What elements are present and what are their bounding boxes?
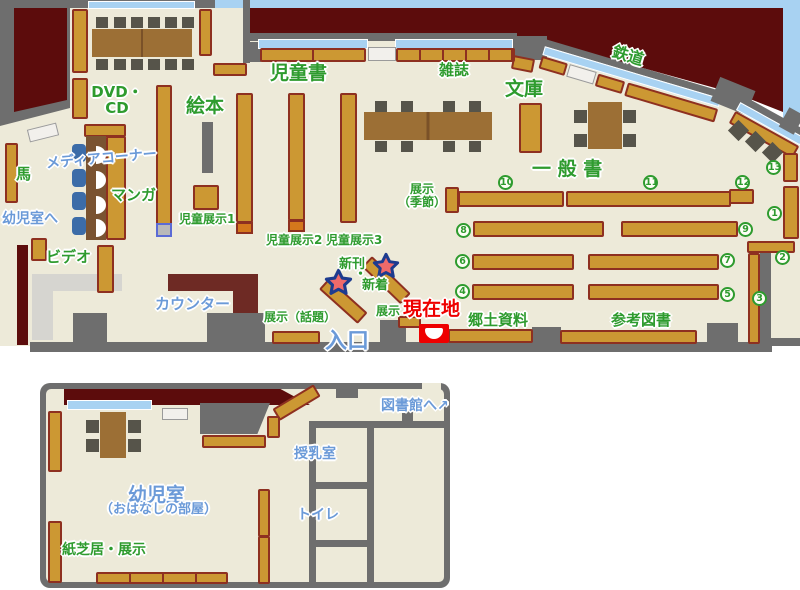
chair: [443, 141, 455, 152]
label-children-exhibit1: 児童展示1: [179, 213, 235, 226]
label-to-library: 図書館へ↗: [381, 399, 449, 414]
wall-block: [532, 327, 561, 344]
room-wall: [309, 421, 444, 428]
label-reference-books: 参考図書: [611, 312, 671, 328]
label-current-location: 現在地: [403, 299, 460, 320]
shelf-number-13: 13: [766, 160, 781, 175]
shelf-number-5: 5: [720, 287, 735, 302]
label-nursing-room: 授乳室: [294, 447, 336, 462]
bookshelf: [236, 93, 253, 223]
shelf-end-display: [236, 222, 253, 234]
label-kamishibai: 紙芝居・展示: [62, 543, 146, 558]
label-dvd-line2: CD: [88, 100, 146, 116]
bookshelf: [258, 536, 270, 584]
chair: [401, 101, 413, 112]
star-icon: [372, 252, 400, 280]
chair: [114, 17, 126, 28]
local-materials-shelf: [448, 329, 533, 343]
chair: [469, 101, 481, 112]
label-magazines: 雑誌: [439, 62, 469, 78]
chair: [131, 59, 143, 70]
label-toilet: トイレ: [297, 508, 339, 523]
bookshelf-4: [472, 284, 574, 300]
label-exhibit-seasonal-line1: 展示: [398, 183, 446, 196]
bookshelf-5: [588, 284, 719, 300]
wall-shelf-row: [260, 48, 366, 62]
reading-table: [588, 102, 622, 149]
bookshelf-6: [472, 254, 574, 270]
display-table: [368, 47, 396, 61]
shelf-number-4: 4: [455, 284, 470, 299]
shelf-number-2: 2: [775, 250, 790, 265]
label-infant-room-sub: （おはなしの部屋）: [100, 503, 217, 517]
shelf-number-8: 8: [456, 223, 471, 238]
label-exhibit-topics: 展示（話題）: [264, 311, 336, 324]
label-children-exhibit2: 児童展示2: [266, 234, 322, 247]
kamishibai-shelf-row: [96, 572, 228, 584]
seasonal-exhibit-shelf: [445, 187, 459, 213]
reference-books-shelf: [560, 330, 697, 344]
chair: [375, 141, 387, 152]
pillar: [202, 122, 213, 173]
chair: [375, 101, 387, 112]
chair: [165, 59, 177, 70]
chair: [131, 17, 143, 28]
media-chair: [72, 217, 86, 235]
label-dvd-cd: DVD・ CD: [88, 84, 146, 116]
label-children-exhibit3: 児童展示3: [326, 234, 382, 247]
chair: [165, 17, 177, 28]
bookshelf-13: [783, 153, 798, 182]
label-to-library-text: 図書館へ: [381, 398, 437, 414]
bookshelf-2: [747, 241, 795, 253]
bookshelf-12: [729, 189, 754, 204]
wall-block: [73, 313, 107, 344]
bookshelf: [48, 411, 62, 472]
bookshelf-10: [458, 191, 564, 207]
label-manga: マンガ: [111, 187, 156, 203]
counter-back-area: [32, 274, 53, 340]
label-to-infant-room: 幼児室へ: [2, 212, 58, 227]
chair: [623, 134, 636, 147]
wall-tab: [336, 389, 358, 398]
bookshelf: [199, 9, 212, 56]
window: [67, 400, 152, 410]
label-bunko: 文庫: [505, 79, 543, 100]
label-new-arrivals-2: 新着: [362, 279, 388, 293]
star-icon: [324, 268, 353, 297]
bookshelf: [267, 416, 280, 438]
label-entrance: 入口: [325, 330, 369, 354]
bookshelf: [48, 521, 62, 583]
label-exhibit: 展示: [376, 305, 400, 318]
label-local-materials: 郷土資料: [468, 312, 528, 328]
marker-symbol: [425, 328, 443, 339]
bookshelf-7: [588, 254, 719, 270]
chair: [114, 59, 126, 70]
label-dvd-line1: DVD・: [88, 84, 146, 100]
chair: [469, 141, 481, 152]
library-floor-map: DVD・ CD 馬 メディアコーナー マンガ 幼児室へ ビデオ 絵本 児童書 児…: [0, 0, 800, 590]
shelf-number-1: 1: [767, 206, 782, 221]
chair: [574, 110, 587, 123]
shelf-end-display: [288, 220, 305, 232]
bookshelf: [156, 85, 172, 225]
chair: [148, 59, 160, 70]
top-left-closed-area: [14, 3, 67, 115]
bookshelf-1: [783, 186, 799, 239]
media-chair: [72, 169, 86, 187]
chair: [148, 17, 160, 28]
bookshelf-8: [473, 221, 604, 237]
children-exhibit-table: [193, 185, 219, 210]
chair: [96, 17, 108, 28]
chair: [623, 110, 636, 123]
kiosk-box: [156, 223, 172, 237]
left-wall-strip: [17, 245, 28, 345]
chair: [401, 141, 413, 152]
outside-sky-right: [783, 0, 800, 118]
bookshelf: [72, 78, 88, 119]
label-exhibit-seasonal: 展示 （季節）: [398, 183, 446, 209]
service-counter: [233, 274, 258, 313]
media-chair: [72, 192, 86, 210]
wall-shelf-row: [396, 48, 515, 62]
reading-table: [92, 29, 192, 57]
shelf-number-6: 6: [455, 254, 470, 269]
bookshelf: [340, 93, 357, 223]
shelf-number-12: 12: [735, 175, 750, 190]
label-horse: 馬: [16, 166, 31, 182]
chair: [128, 420, 141, 433]
bookshelf: [72, 9, 88, 73]
shelf-number-3: 3: [752, 291, 767, 306]
chair: [86, 439, 99, 452]
bookshelf: [213, 63, 247, 76]
shelf-number-9: 9: [738, 222, 753, 237]
wall-block: [707, 323, 738, 344]
video-shelf: [97, 245, 114, 293]
label-children-books: 児童書: [270, 63, 327, 84]
chair: [86, 420, 99, 433]
reading-table: [100, 412, 126, 458]
bookshelf: [202, 435, 266, 448]
bunko-shelf: [519, 103, 542, 153]
label-counter: カウンター: [155, 296, 230, 312]
room-wall: [367, 421, 374, 583]
bookshelf-11: [566, 191, 731, 207]
wall-block: [207, 313, 265, 344]
sign-board: [162, 408, 188, 420]
chair: [182, 59, 194, 70]
reading-table: [364, 112, 492, 140]
chair: [182, 17, 194, 28]
bookshelf: [258, 489, 270, 537]
label-picture-books: 絵本: [186, 96, 224, 117]
room-wall: [309, 540, 374, 547]
label-exhibit-seasonal-line2: （季節）: [398, 196, 446, 209]
wall: [770, 338, 800, 346]
bookshelf: [31, 238, 47, 261]
shelf-number-11: 11: [643, 175, 658, 190]
current-location-marker: [419, 324, 449, 343]
label-video: ビデオ: [46, 249, 91, 265]
window: [88, 1, 195, 9]
shelf-number-10: 10: [498, 175, 513, 190]
to-library-arrow-icon: ↗: [437, 398, 449, 414]
chair: [443, 101, 455, 112]
room-wall: [309, 482, 374, 489]
label-general-books: 一 般 書: [532, 159, 602, 180]
bookshelf: [288, 93, 305, 221]
shelf-number-7: 7: [720, 253, 735, 268]
chair: [96, 59, 108, 70]
bookshelf-9: [621, 221, 738, 237]
topics-exhibit-shelf: [272, 331, 320, 344]
chair: [128, 439, 141, 452]
chair: [574, 134, 587, 147]
doorway-gap: [422, 383, 441, 391]
